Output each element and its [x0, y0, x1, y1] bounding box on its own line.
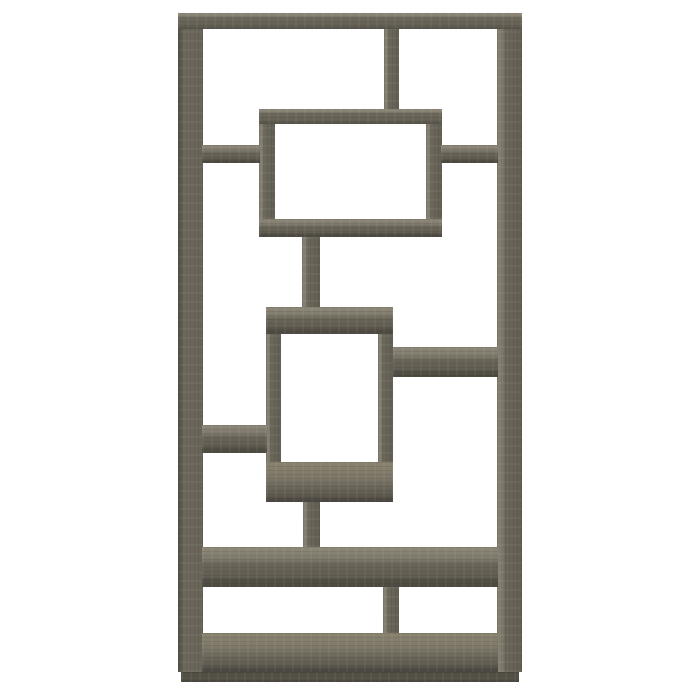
bookcase: [0, 0, 700, 700]
top-board: [178, 13, 522, 29]
upper-box-top-board: [259, 109, 442, 124]
right-side-post: [497, 13, 522, 672]
bottom-floor-board: [202, 633, 498, 672]
bookcase-product-photo: [0, 0, 700, 700]
upper-box-right-side: [426, 109, 442, 237]
middle-box-top-board: [266, 307, 393, 334]
middle-left-shelf: [202, 425, 267, 453]
upper-left-stub-shelf: [202, 145, 260, 163]
lower-connector-post: [303, 500, 320, 547]
top-center-divider: [384, 28, 399, 110]
left-side-post: [178, 13, 203, 672]
upper-box-left-side: [259, 109, 275, 237]
upper-connector-post: [302, 237, 320, 307]
upper-box-bottom-board: [259, 219, 442, 237]
middle-right-shelf: [393, 347, 498, 377]
bottom-center-divider: [383, 587, 399, 635]
upper-right-stub-shelf: [441, 145, 498, 163]
middle-box-bottom-board: [266, 462, 393, 502]
base-strip: [181, 672, 519, 682]
long-middle-shelf: [202, 547, 498, 587]
